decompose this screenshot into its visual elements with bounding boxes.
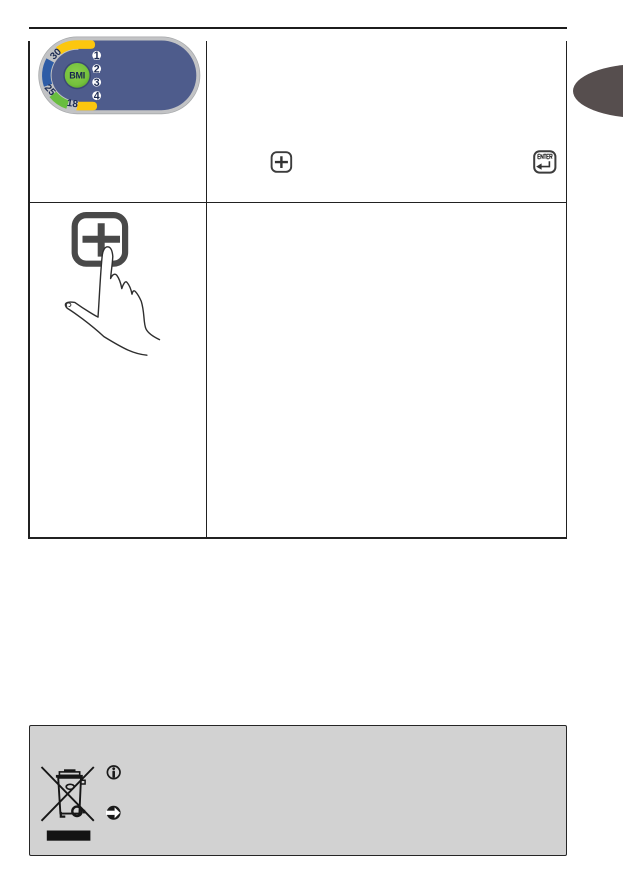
svg-text:18: 18 [66, 98, 79, 111]
svg-text:BMI: BMI [69, 71, 85, 81]
svg-text:1: 1 [94, 50, 100, 62]
svg-text:2: 2 [94, 64, 100, 76]
svg-text:4: 4 [94, 91, 100, 103]
svg-text:3: 3 [94, 77, 100, 89]
